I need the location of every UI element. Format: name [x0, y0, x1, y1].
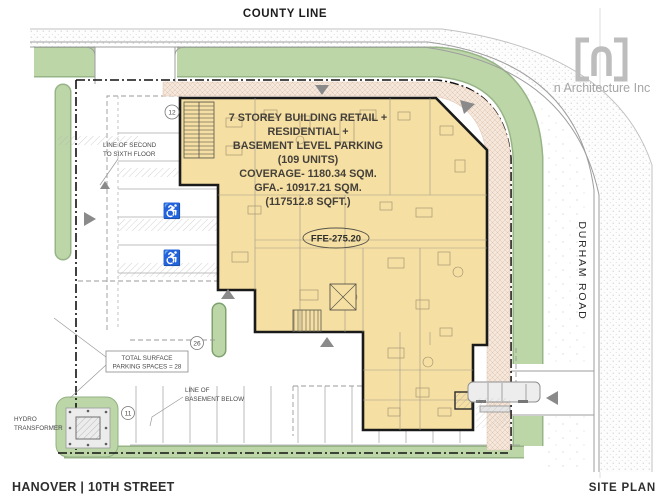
svg-text:FFE-275.20: FFE-275.20 [311, 234, 361, 245]
building-info-line: 7 STOREY BUILDING RETAIL + [229, 112, 387, 124]
building-info-line: (117512.8 SQFT.) [265, 196, 351, 208]
building-info-line: COVERAGE- 1180.34 SQM. [239, 168, 376, 180]
second-floor-note: TO SIXTH FLOOR [103, 151, 156, 158]
project-title: HANOVER | 10TH STREET [12, 480, 175, 494]
site-plan-drawing: ♿ ♿ [0, 0, 670, 500]
accessible-parking-icon: ♿ [163, 202, 182, 220]
basement-note: LINE OF [185, 387, 210, 394]
ramp-hatch [476, 398, 510, 428]
surface-parking-note: TOTAL SURFACE PARKING SPACES = 28 [106, 351, 188, 372]
svg-text:PARKING SPACES = 28: PARKING SPACES = 28 [113, 364, 182, 371]
elevator [330, 284, 356, 310]
building-info-line: RESIDENTIAL + [267, 126, 348, 138]
hydro-note: TRANSFORMER [14, 425, 63, 432]
basement-note: BASEMENT BELOW [185, 396, 244, 403]
building-info-line: GFA.- 10917.21 SQM. [254, 182, 361, 194]
logo-company-name: n Architecture Inc [554, 81, 651, 95]
second-floor-note: LINE OF SECOND [103, 142, 157, 149]
marker-11: 11 [125, 411, 132, 418]
stair-south [293, 310, 321, 332]
hydro-transformer-pad [66, 408, 110, 448]
svg-text:TOTAL SURFACE: TOTAL SURFACE [122, 355, 173, 362]
county-line-label: COUNTY LINE [243, 8, 327, 20]
durham-road-label: DURHAM ROAD [576, 221, 588, 320]
building-info-line: (109 UNITS) [278, 154, 339, 166]
building-info-line: BASEMENT LEVEL PARKING [233, 140, 383, 152]
accessible-parking-icon: ♿ [163, 249, 182, 267]
marker-26: 26 [193, 341, 201, 348]
hydro-note: HYDRO [14, 416, 37, 423]
marker-12: 12 [168, 110, 176, 117]
site-plan-sheet: ♿ ♿ [0, 0, 670, 500]
sheet-title: SITE PLAN [589, 482, 656, 494]
